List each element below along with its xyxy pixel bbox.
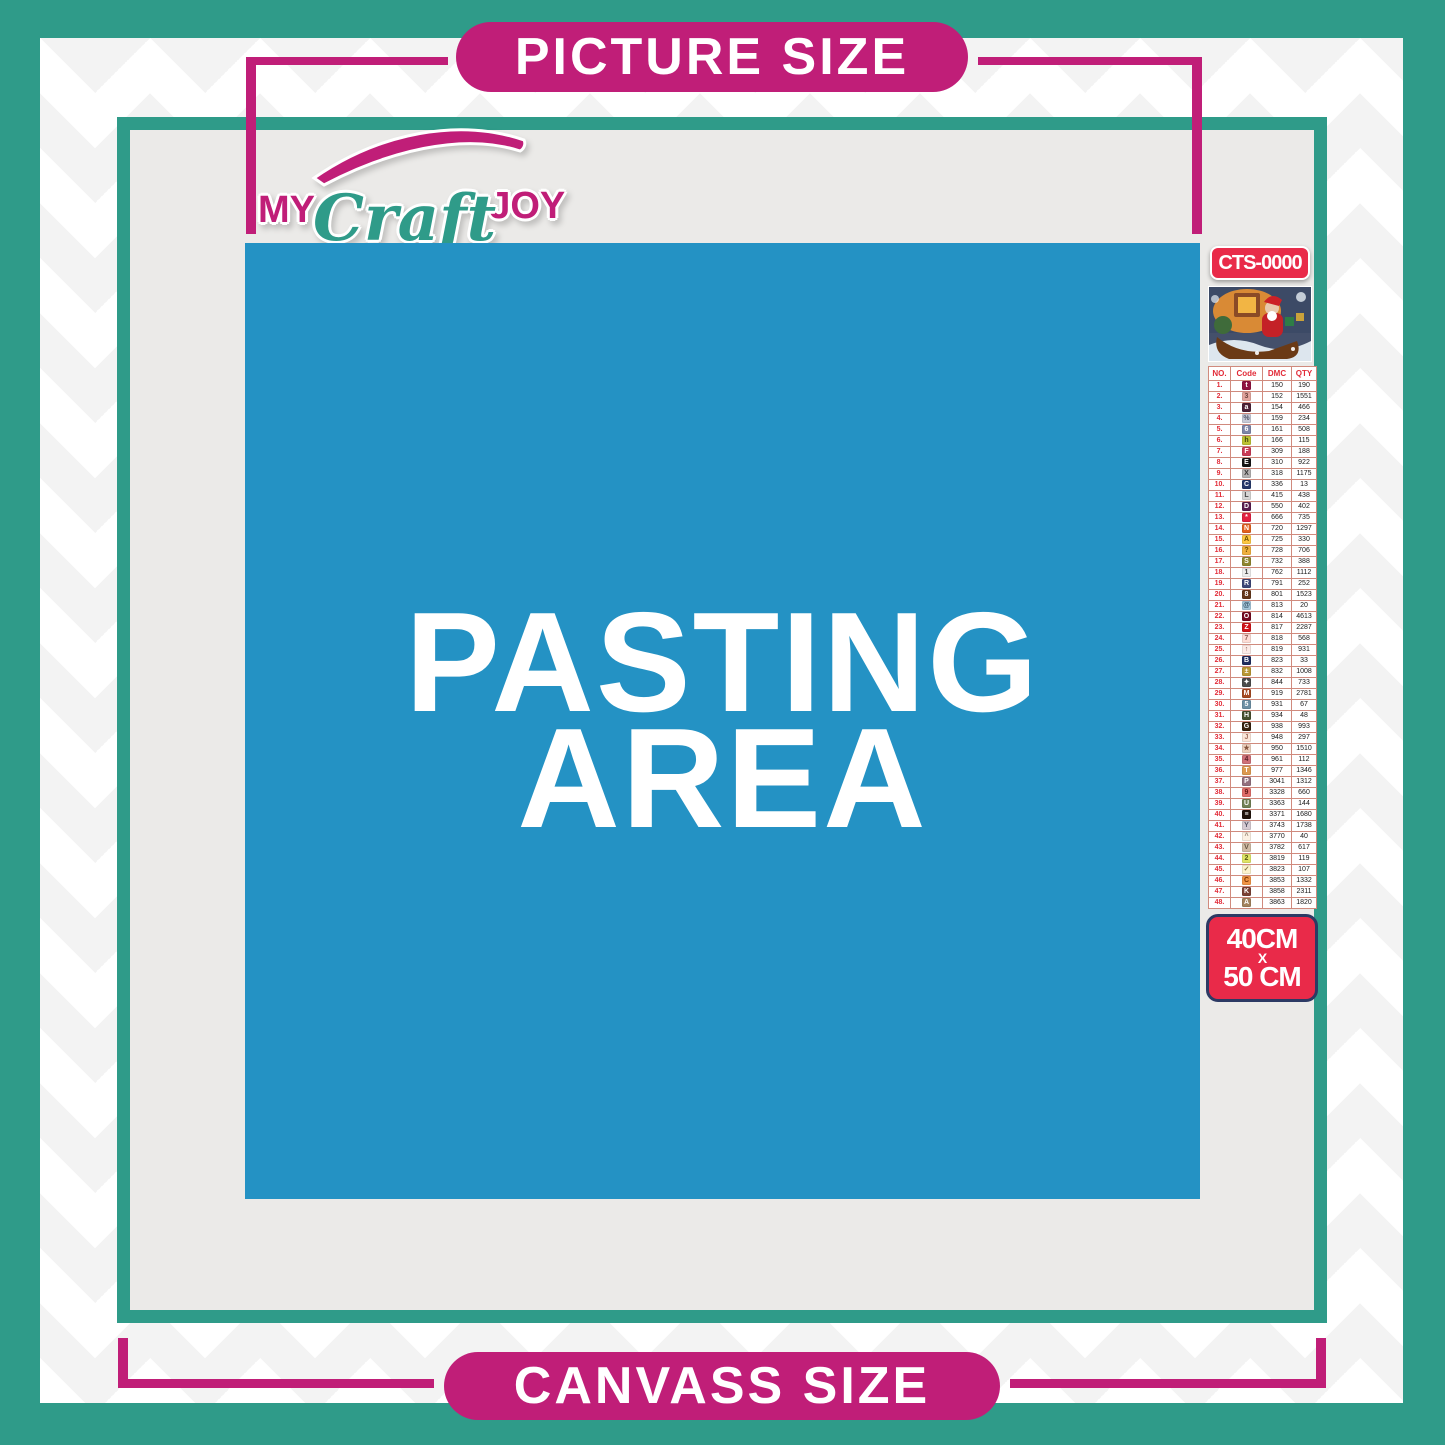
legend-cell-no: 16. (1209, 546, 1231, 557)
legend-cell-dmc: 3363 (1263, 799, 1292, 810)
legend-cell-qty: 922 (1292, 458, 1317, 469)
legend-cell-no: 36. (1209, 766, 1231, 777)
canvass-size-line-right (1010, 1379, 1326, 1388)
legend-cell-no: 35. (1209, 755, 1231, 766)
legend-cell-dmc: 814 (1263, 612, 1292, 623)
legend-cell-qty: 190 (1292, 381, 1317, 392)
legend-cell-dmc: 919 (1263, 689, 1292, 700)
legend-cell-dmc: 720 (1263, 524, 1292, 535)
legend-cell-dmc: 938 (1263, 722, 1292, 733)
legend-row: 6.h166115 (1209, 436, 1317, 447)
legend-row: 19.R791252 (1209, 579, 1317, 590)
legend-cell-code: C (1231, 876, 1263, 887)
legend-cell-qty: 297 (1292, 733, 1317, 744)
legend-cell-code: ✓ (1231, 865, 1263, 876)
legend-cell-qty: 40 (1292, 832, 1317, 843)
color-symbol-chip: A (1242, 898, 1251, 907)
legend-cell-code: 2 (1231, 854, 1263, 865)
legend-cell-code: P (1231, 777, 1263, 788)
legend-cell-qty: 2311 (1292, 887, 1317, 898)
legend-header-qty: QTY (1292, 367, 1317, 381)
color-symbol-chip: F (1242, 447, 1251, 456)
legend-cell-qty: 466 (1292, 403, 1317, 414)
color-symbol-chip: ? (1242, 546, 1251, 555)
legend-cell-code: U (1231, 799, 1263, 810)
legend-cell-no: 18. (1209, 568, 1231, 579)
color-symbol-chip: D (1242, 502, 1251, 511)
legend-cell-no: 22. (1209, 612, 1231, 623)
legend-cell-no: 31. (1209, 711, 1231, 722)
legend-cell-code: V (1231, 843, 1263, 854)
legend-row: 5.6161508 (1209, 425, 1317, 436)
legend-row: 4.%159234 (1209, 414, 1317, 425)
legend-cell-no: 2. (1209, 392, 1231, 403)
color-symbol-chip: C (1242, 480, 1251, 489)
legend-cell-code: X (1231, 469, 1263, 480)
color-symbol-chip: 7 (1242, 634, 1251, 643)
legend-row: 32.G938993 (1209, 722, 1317, 733)
logo-word-my: MY (258, 189, 315, 232)
legend-cell-dmc: 823 (1263, 656, 1292, 667)
color-symbol-chip: V (1242, 843, 1251, 852)
infographic-canvas: PICTURE SIZE CANVASS SIZE MY Craft JOY P… (0, 0, 1445, 1445)
legend-cell-no: 24. (1209, 634, 1231, 645)
legend-row: 43.V3782617 (1209, 843, 1317, 854)
legend-row: 27.±8321008 (1209, 667, 1317, 678)
legend-cell-no: 46. (1209, 876, 1231, 887)
legend-cell-no: 42. (1209, 832, 1231, 843)
legend-row: 38.93328660 (1209, 788, 1317, 799)
legend-cell-qty: 115 (1292, 436, 1317, 447)
color-symbol-chip: A (1242, 535, 1251, 544)
legend-cell-dmc: 791 (1263, 579, 1292, 590)
legend-cell-code: 8 (1231, 590, 1263, 601)
legend-row: 47.K38582311 (1209, 887, 1317, 898)
legend-cell-code: N (1231, 524, 1263, 535)
legend-row: 48.A38631820 (1209, 898, 1317, 909)
legend-cell-code: 4 (1231, 755, 1263, 766)
legend-cell-dmc: 3858 (1263, 887, 1292, 898)
legend-body: 1.t1501902.315215513.a1544664.%1592345.6… (1209, 381, 1317, 909)
legend-cell-code: 7 (1231, 634, 1263, 645)
legend-cell-qty: 119 (1292, 854, 1317, 865)
legend-cell-no: 25. (1209, 645, 1231, 656)
color-symbol-chip: ★ (1242, 744, 1251, 753)
legend-row: 21.@81320 (1209, 601, 1317, 612)
legend-cell-qty: 1175 (1292, 469, 1317, 480)
legend-cell-code: O (1231, 612, 1263, 623)
legend-cell-qty: 330 (1292, 535, 1317, 546)
picture-size-line-right (978, 57, 1202, 65)
legend-cell-qty: 2781 (1292, 689, 1317, 700)
legend-cell-dmc: 166 (1263, 436, 1292, 447)
legend-cell-qty: 188 (1292, 447, 1317, 458)
legend-cell-dmc: 813 (1263, 601, 1292, 612)
legend-cell-code: J (1231, 733, 1263, 744)
legend-cell-code: G (1231, 722, 1263, 733)
legend-row: 29.M9192781 (1209, 689, 1317, 700)
color-symbol-chip: 6 (1242, 425, 1251, 434)
legend-cell-dmc: 961 (1263, 755, 1292, 766)
legend-cell-qty: 993 (1292, 722, 1317, 733)
legend-cell-code: * (1231, 513, 1263, 524)
legend-cell-code: A (1231, 535, 1263, 546)
legend-cell-dmc: 728 (1263, 546, 1292, 557)
logo-word-joy: JOY (489, 185, 565, 228)
color-symbol-chip: % (1242, 414, 1251, 423)
legend-cell-dmc: 152 (1263, 392, 1292, 403)
legend-cell-qty: 706 (1292, 546, 1317, 557)
legend-row: 26.B82333 (1209, 656, 1317, 667)
legend-cell-dmc: 725 (1263, 535, 1292, 546)
legend-cell-no: 17. (1209, 557, 1231, 568)
legend-cell-code: ↑ (1231, 645, 1263, 656)
canvass-size-tick-right (1316, 1338, 1326, 1388)
color-symbol-chip: ≡ (1242, 810, 1251, 819)
legend-cell-code: ^ (1231, 832, 1263, 843)
legend-row: 18.17621112 (1209, 568, 1317, 579)
color-symbol-chip: 5 (1242, 700, 1251, 709)
dmc-legend-table: NO. Code DMC QTY 1.t1501902.315215513.a1… (1208, 366, 1317, 909)
legend-row: 35.4961112 (1209, 755, 1317, 766)
legend-cell-dmc: 3371 (1263, 810, 1292, 821)
legend-cell-no: 6. (1209, 436, 1231, 447)
color-symbol-chip: M (1242, 689, 1251, 698)
legend-cell-qty: 4613 (1292, 612, 1317, 623)
legend-cell-dmc: 336 (1263, 480, 1292, 491)
legend-cell-no: 44. (1209, 854, 1231, 865)
legend-row: 17.S732388 (1209, 557, 1317, 568)
color-symbol-chip: K (1242, 887, 1251, 896)
color-symbol-chip: P (1242, 777, 1251, 786)
legend-cell-qty: 1008 (1292, 667, 1317, 678)
color-symbol-chip: 1 (1242, 568, 1251, 577)
legend-cell-qty: 1738 (1292, 821, 1317, 832)
legend-cell-dmc: 3782 (1263, 843, 1292, 854)
logo-word-craft: Craft (313, 192, 496, 246)
legend-cell-qty: 1820 (1292, 898, 1317, 909)
legend-cell-code: ★ (1231, 744, 1263, 755)
picture-size-line-left (250, 57, 448, 65)
legend-cell-code: Y (1231, 821, 1263, 832)
color-symbol-chip: 9 (1242, 788, 1251, 797)
legend-cell-no: 7. (1209, 447, 1231, 458)
color-symbol-chip: h (1242, 436, 1251, 445)
color-symbol-chip: a (1242, 403, 1251, 412)
legend-cell-no: 47. (1209, 887, 1231, 898)
legend-cell-code: T (1231, 766, 1263, 777)
legend-cell-code: 9 (1231, 788, 1263, 799)
color-symbol-chip: 4 (1242, 755, 1251, 764)
color-symbol-chip: H (1242, 711, 1251, 720)
legend-cell-qty: 931 (1292, 645, 1317, 656)
legend-cell-qty: 1312 (1292, 777, 1317, 788)
legend-cell-qty: 1112 (1292, 568, 1317, 579)
canvass-size-tick-left (118, 1338, 128, 1388)
legend-row: 15.A725330 (1209, 535, 1317, 546)
legend-cell-code: M (1231, 689, 1263, 700)
color-symbol-chip: Y (1242, 821, 1251, 830)
legend-cell-dmc: 154 (1263, 403, 1292, 414)
legend-cell-no: 40. (1209, 810, 1231, 821)
legend-cell-no: 21. (1209, 601, 1231, 612)
legend-row: 14.N7201297 (1209, 524, 1317, 535)
picture-size-leg-right (1192, 57, 1202, 234)
color-symbol-chip: B (1242, 656, 1251, 665)
legend-row: 25.↑819931 (1209, 645, 1317, 656)
legend-row: 41.Y37431738 (1209, 821, 1317, 832)
legend-cell-dmc: 832 (1263, 667, 1292, 678)
legend-cell-dmc: 950 (1263, 744, 1292, 755)
legend-cell-code: h (1231, 436, 1263, 447)
legend-row: 39.U3363144 (1209, 799, 1317, 810)
legend-cell-qty: 20 (1292, 601, 1317, 612)
legend-cell-qty: 568 (1292, 634, 1317, 645)
legend-row: 46.C38531332 (1209, 876, 1317, 887)
legend-cell-qty: 1346 (1292, 766, 1317, 777)
size-badge: 40CM X 50 CM (1206, 914, 1318, 1002)
legend-cell-code: ≡ (1231, 810, 1263, 821)
color-symbol-chip: ± (1242, 667, 1251, 676)
legend-row: 31.H93448 (1209, 711, 1317, 722)
legend-row: 2.31521551 (1209, 392, 1317, 403)
legend-cell-qty: 33 (1292, 656, 1317, 667)
pasting-area-line2: AREA (517, 721, 927, 837)
legend-cell-no: 33. (1209, 733, 1231, 744)
legend-row: 11.L415438 (1209, 491, 1317, 502)
legend-cell-dmc: 415 (1263, 491, 1292, 502)
legend-cell-code: B (1231, 656, 1263, 667)
legend-cell-dmc: 159 (1263, 414, 1292, 425)
legend-cell-dmc: 819 (1263, 645, 1292, 656)
legend-row: 20.88011523 (1209, 590, 1317, 601)
color-symbol-chip: ↑ (1242, 645, 1251, 654)
legend-cell-dmc: 762 (1263, 568, 1292, 579)
legend-cell-code: S (1231, 557, 1263, 568)
legend-cell-no: 34. (1209, 744, 1231, 755)
legend-cell-code: 6 (1231, 425, 1263, 436)
legend-cell-dmc: 844 (1263, 678, 1292, 689)
legend-cell-code: @ (1231, 601, 1263, 612)
color-symbol-chip: C (1242, 876, 1251, 885)
legend-cell-no: 11. (1209, 491, 1231, 502)
color-symbol-chip: N (1242, 524, 1251, 533)
color-symbol-chip: T (1242, 766, 1251, 775)
legend-cell-code: Z (1231, 623, 1263, 634)
color-symbol-chip: * (1242, 513, 1251, 522)
legend-cell-dmc: 818 (1263, 634, 1292, 645)
legend-cell-dmc: 3041 (1263, 777, 1292, 788)
legend-cell-qty: 438 (1292, 491, 1317, 502)
legend-row: 1.t150190 (1209, 381, 1317, 392)
legend-cell-qty: 1510 (1292, 744, 1317, 755)
legend-row: 34.★9501510 (1209, 744, 1317, 755)
legend-cell-code: 1 (1231, 568, 1263, 579)
legend-cell-dmc: 309 (1263, 447, 1292, 458)
legend-cell-no: 48. (1209, 898, 1231, 909)
legend-cell-no: 23. (1209, 623, 1231, 634)
legend-cell-no: 43. (1209, 843, 1231, 854)
legend-cell-qty: 402 (1292, 502, 1317, 513)
legend-cell-no: 8. (1209, 458, 1231, 469)
legend-row: 9.X3181175 (1209, 469, 1317, 480)
legend-cell-qty: 617 (1292, 843, 1317, 854)
legend-header-dmc: DMC (1263, 367, 1292, 381)
legend-cell-qty: 1551 (1292, 392, 1317, 403)
color-symbol-chip: ✦ (1242, 678, 1251, 687)
legend-cell-code: K (1231, 887, 1263, 898)
color-symbol-chip: O (1242, 612, 1251, 621)
legend-row: 28.✦844733 (1209, 678, 1317, 689)
legend-cell-dmc: 948 (1263, 733, 1292, 744)
legend-cell-code: a (1231, 403, 1263, 414)
legend-cell-no: 38. (1209, 788, 1231, 799)
legend-cell-qty: 234 (1292, 414, 1317, 425)
legend-cell-code: ? (1231, 546, 1263, 557)
legend-cell-code: ± (1231, 667, 1263, 678)
legend-cell-no: 19. (1209, 579, 1231, 590)
legend-cell-no: 41. (1209, 821, 1231, 832)
legend-row: 12.D550402 (1209, 502, 1317, 513)
canvass-size-line-left (118, 1379, 434, 1388)
legend-cell-qty: 13 (1292, 480, 1317, 491)
picture-size-leg-left (246, 57, 256, 234)
color-symbol-chip: X (1242, 469, 1251, 478)
legend-cell-qty: 144 (1292, 799, 1317, 810)
legend-cell-no: 32. (1209, 722, 1231, 733)
legend-row: 37.P30411312 (1209, 777, 1317, 788)
legend-cell-dmc: 3823 (1263, 865, 1292, 876)
color-symbol-chip: R (1242, 579, 1251, 588)
legend-cell-no: 13. (1209, 513, 1231, 524)
legend-cell-no: 4. (1209, 414, 1231, 425)
legend-cell-code: % (1231, 414, 1263, 425)
legend-cell-no: 14. (1209, 524, 1231, 535)
legend-cell-no: 27. (1209, 667, 1231, 678)
color-symbol-chip: L (1242, 491, 1251, 500)
legend-cell-code: H (1231, 711, 1263, 722)
legend-header-row: NO. Code DMC QTY (1209, 367, 1317, 381)
legend-cell-no: 1. (1209, 381, 1231, 392)
legend-cell-qty: 1297 (1292, 524, 1317, 535)
color-symbol-chip: 3 (1242, 392, 1251, 401)
color-symbol-chip: @ (1242, 601, 1251, 610)
legend-row: 10.C33613 (1209, 480, 1317, 491)
color-symbol-chip: ✓ (1242, 865, 1251, 874)
size-height: 50 CM (1223, 964, 1300, 990)
legend-cell-qty: 48 (1292, 711, 1317, 722)
size-width: 40CM (1227, 926, 1298, 952)
color-symbol-chip: ^ (1242, 832, 1251, 841)
legend-cell-no: 29. (1209, 689, 1231, 700)
legend-cell-dmc: 161 (1263, 425, 1292, 436)
legend-row: 23.Z8172287 (1209, 623, 1317, 634)
legend-cell-code: F (1231, 447, 1263, 458)
legend-cell-dmc: 3863 (1263, 898, 1292, 909)
legend-cell-qty: 733 (1292, 678, 1317, 689)
legend-cell-code: D (1231, 502, 1263, 513)
legend-header-code: Code (1231, 367, 1263, 381)
legend-row: 24.7818568 (1209, 634, 1317, 645)
legend-cell-code: C (1231, 480, 1263, 491)
legend-cell-code: R (1231, 579, 1263, 590)
legend-cell-code: 3 (1231, 392, 1263, 403)
legend-cell-no: 39. (1209, 799, 1231, 810)
legend-row: 42.^377040 (1209, 832, 1317, 843)
legend-cell-qty: 252 (1292, 579, 1317, 590)
legend-row: 33.J948297 (1209, 733, 1317, 744)
legend-cell-qty: 112 (1292, 755, 1317, 766)
legend-cell-no: 28. (1209, 678, 1231, 689)
legend-cell-code: 5 (1231, 700, 1263, 711)
legend-cell-dmc: 817 (1263, 623, 1292, 634)
legend-cell-dmc: 977 (1263, 766, 1292, 777)
legend-cell-dmc: 732 (1263, 557, 1292, 568)
legend-row: 3.a154466 (1209, 403, 1317, 414)
legend-row: 7.F309188 (1209, 447, 1317, 458)
color-symbol-chip: 8 (1242, 590, 1251, 599)
color-symbol-chip: t (1242, 381, 1251, 390)
legend-cell-qty: 1523 (1292, 590, 1317, 601)
legend-cell-qty: 67 (1292, 700, 1317, 711)
legend-cell-no: 9. (1209, 469, 1231, 480)
legend-cell-qty: 388 (1292, 557, 1317, 568)
legend-cell-no: 10. (1209, 480, 1231, 491)
legend-cell-qty: 1680 (1292, 810, 1317, 821)
legend-row: 45.✓3823107 (1209, 865, 1317, 876)
legend-cell-code: t (1231, 381, 1263, 392)
legend-cell-dmc: 3819 (1263, 854, 1292, 865)
brand-logo: MY Craft JOY (258, 128, 538, 244)
pasting-area: PASTING AREA (245, 243, 1200, 1199)
legend-cell-qty: 660 (1292, 788, 1317, 799)
legend-cell-no: 26. (1209, 656, 1231, 667)
color-symbol-chip: U (1242, 799, 1251, 808)
color-symbol-chip: S (1242, 557, 1251, 566)
color-symbol-chip: 2 (1242, 854, 1251, 863)
legend-cell-code: ✦ (1231, 678, 1263, 689)
legend-cell-dmc: 318 (1263, 469, 1292, 480)
legend-cell-dmc: 3853 (1263, 876, 1292, 887)
legend-cell-qty: 508 (1292, 425, 1317, 436)
color-symbol-chip: Z (1242, 623, 1251, 632)
legend-cell-dmc: 3328 (1263, 788, 1292, 799)
legend-cell-qty: 107 (1292, 865, 1317, 876)
legend-cell-qty: 1332 (1292, 876, 1317, 887)
legend-cell-no: 20. (1209, 590, 1231, 601)
color-symbol-chip: G (1242, 722, 1251, 731)
picture-size-badge: PICTURE SIZE (456, 22, 968, 92)
legend-cell-code: L (1231, 491, 1263, 502)
legend-cell-code: E (1231, 458, 1263, 469)
legend-cell-qty: 2287 (1292, 623, 1317, 634)
legend-cell-qty: 735 (1292, 513, 1317, 524)
sku-badge: CTS-0000 (1210, 246, 1310, 280)
legend-row: 40.≡33711680 (1209, 810, 1317, 821)
legend-row: 13.*666735 (1209, 513, 1317, 524)
legend-cell-dmc: 150 (1263, 381, 1292, 392)
brush-swoosh-icon (310, 122, 530, 188)
legend-cell-no: 5. (1209, 425, 1231, 436)
legend-cell-dmc: 310 (1263, 458, 1292, 469)
legend-cell-no: 45. (1209, 865, 1231, 876)
legend-cell-no: 15. (1209, 535, 1231, 546)
legend-row: 8.E310922 (1209, 458, 1317, 469)
legend-cell-code: A (1231, 898, 1263, 909)
legend-row: 44.23819119 (1209, 854, 1317, 865)
color-symbol-chip: E (1242, 458, 1251, 467)
legend-cell-dmc: 934 (1263, 711, 1292, 722)
